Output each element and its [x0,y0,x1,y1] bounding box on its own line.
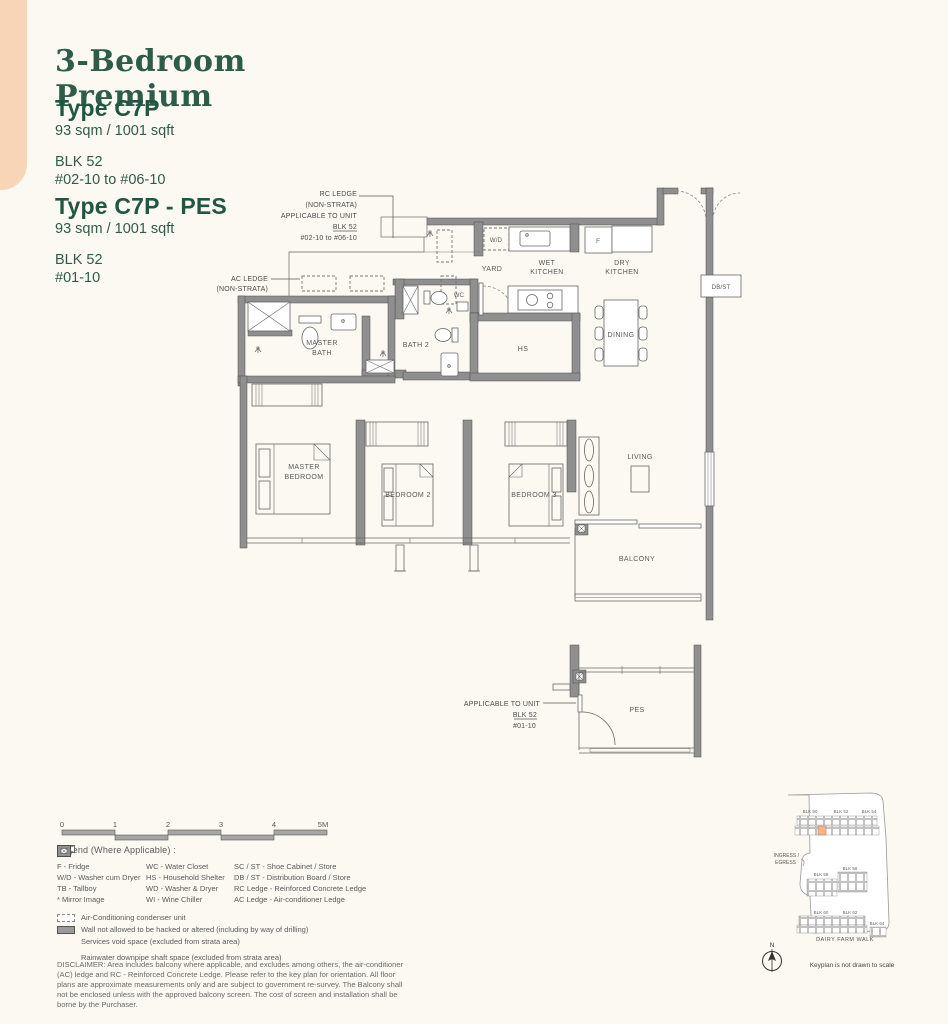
wet-kitchen-label-1: WET [539,260,556,267]
wet-kitchen-label-2: KITCHEN [530,269,564,276]
legend-item: AC Ledge - Air-conditioner Ledge [234,894,384,905]
scale-tick-5: 5M [318,820,328,829]
rc-note-2: (NON-STRATA) [305,202,357,209]
scale-tick-4: 4 [272,820,276,829]
rc-note-1: RC LEDGE [320,191,358,198]
wc-label: WC [454,293,465,299]
keyplan-blk52-label: BLK 52 [834,809,849,814]
north-arrow-icon: N [763,942,782,972]
legend-item: TB - Tallboy [57,883,146,894]
master-bath-label-2: BATH [312,350,332,357]
keyplan-note: Keyplan is not drawn to scale [810,962,895,969]
wall-no-hack-icon [57,926,75,934]
rc-note-3: APPLICABLE TO UNIT [281,213,358,220]
legend-symbol-label: Air-Conditioning condenser unit [81,913,186,922]
disclaimer-text: DISCLAIMER: Area includes balcony where … [57,960,413,1010]
legend-columns: F - Fridge W/D - Washer cum Dryer TB - T… [57,861,441,905]
legend-column-1: F - Fridge W/D - Washer cum Dryer TB - T… [57,861,146,905]
ac-note-1: AC LEDGE [231,276,268,283]
legend-item: RC Ledge - Reinforced Concrete Ledge [234,883,384,894]
legend-symbols: Air-Conditioning condenser unit Wall not… [57,913,441,962]
rc-note-4: BLK 52 [333,224,357,231]
ac-note-2: (NON-STRATA) [216,286,268,293]
legend-item: W/D - Washer cum Dryer [57,872,146,883]
dining-label: DINING [608,332,635,339]
keyplan-blk62-label: BLK 62 [843,910,858,915]
scale-bar: 0 1 2 3 4 5M [60,820,328,840]
pes-label: PES [629,707,644,714]
scale-tick-2: 2 [166,820,170,829]
legend-item: WI - Wine Chiller [146,894,234,905]
legend-item: * Mirror Image [57,894,146,905]
keyplan-unit-highlight [818,826,826,835]
keyplan-boundary [788,793,889,933]
bedroom2-label: BEDROOM 2 [385,492,431,499]
keyplan: BLK 50 BLK 52 BLK 54 BLK 56 BLK 58 BLK 6… [763,793,895,972]
legend-column-3: SC / ST - Shoe Cabinet / Store DB / ST -… [234,861,384,905]
scale-tick-1: 1 [113,820,117,829]
legend-item: SC / ST - Shoe Cabinet / Store [234,861,384,872]
scale-tick-0: 0 [60,820,64,829]
legend-heading: Legend (Where Applicable) : [57,845,441,855]
pes-note-3: #01-10 [513,723,536,730]
master-bedroom-label-1: MASTER [288,464,320,471]
scale-tick-3: 3 [219,820,223,829]
keyplan-ingress-label-2: EGRESS [775,860,797,866]
pes-note-2: BLK 52 [513,712,537,719]
bedroom3-label: BEDROOM 3 [511,492,557,499]
legend-symbol-label: Wall not allowed to be hacked or altered… [81,925,308,934]
keyplan-street-label: DAIRY FARM WALK [816,937,874,943]
yard-label: YARD [482,266,503,273]
dry-kitchen-label-2: KITCHEN [605,269,639,276]
legend-symbol-label: Services void space (excluded from strat… [81,937,240,946]
legend-symbol-row: Services void space (excluded from strat… [57,937,441,946]
keyplan-blk54-label: BLK 54 [862,809,877,814]
bath2-label: BATH 2 [403,342,429,349]
living-furniture-group [579,437,649,515]
keyplan-blk60-label: BLK 60 [814,910,829,915]
keyplan-blk58-label: BLK 58 [814,872,829,877]
legend-symbol-row: Wall not allowed to be hacked or altered… [57,925,441,934]
fridge-label: F [596,239,600,245]
keyplan-blk50-label: BLK 50 [803,809,818,814]
living-label: LIVING [627,454,652,461]
svg-text:N: N [770,942,775,949]
shower-icons [255,231,452,357]
legend: Legend (Where Applicable) : F - Fridge W… [57,845,441,965]
rc-note-5: #02-10 to #06-10 [300,235,357,242]
pes-note-1: APPLICABLE TO UNIT [464,701,541,708]
door-leaf-group [479,283,483,315]
legend-column-2: WC - Water Closet HS - Household Shelter… [146,861,234,905]
legend-symbol-row: Air-Conditioning condenser unit [57,913,441,922]
legend-item: HS - Household Shelter [146,872,234,883]
legend-item: WD - Washer & Dryer [146,883,234,894]
keyplan-ingress-label-1: INGRESS / [774,853,800,859]
dbst-label: DB/ST [712,285,731,291]
balcony-label: BALCONY [619,556,655,563]
dry-kitchen-label-1: DRY [614,260,630,267]
ac-condenser-icon [57,914,75,922]
wardrobes-group [252,384,567,446]
legend-item: F - Fridge [57,861,146,872]
legend-item: DB / ST - Distribution Board / Store [234,872,384,883]
wd-label: W/D [490,238,503,244]
floorplan-page: { "header": { "title": "3-Bedroom Premiu… [0,0,948,1024]
scale-bar-segments [62,830,327,840]
legend-item: WC - Water Closet [146,861,234,872]
room-labels-group: W/D F DB/ST YARD WET KITCHEN DRY KITCHEN… [285,238,731,714]
master-bedroom-label-2: BEDROOM [285,474,324,481]
master-bath-label-1: MASTER [306,340,338,347]
beds-group [256,444,563,526]
hs-label: HS [518,346,529,353]
keyplan-blk56-label: BLK 56 [843,866,858,871]
keyplan-blk64-label: BLK 64 [870,921,885,926]
